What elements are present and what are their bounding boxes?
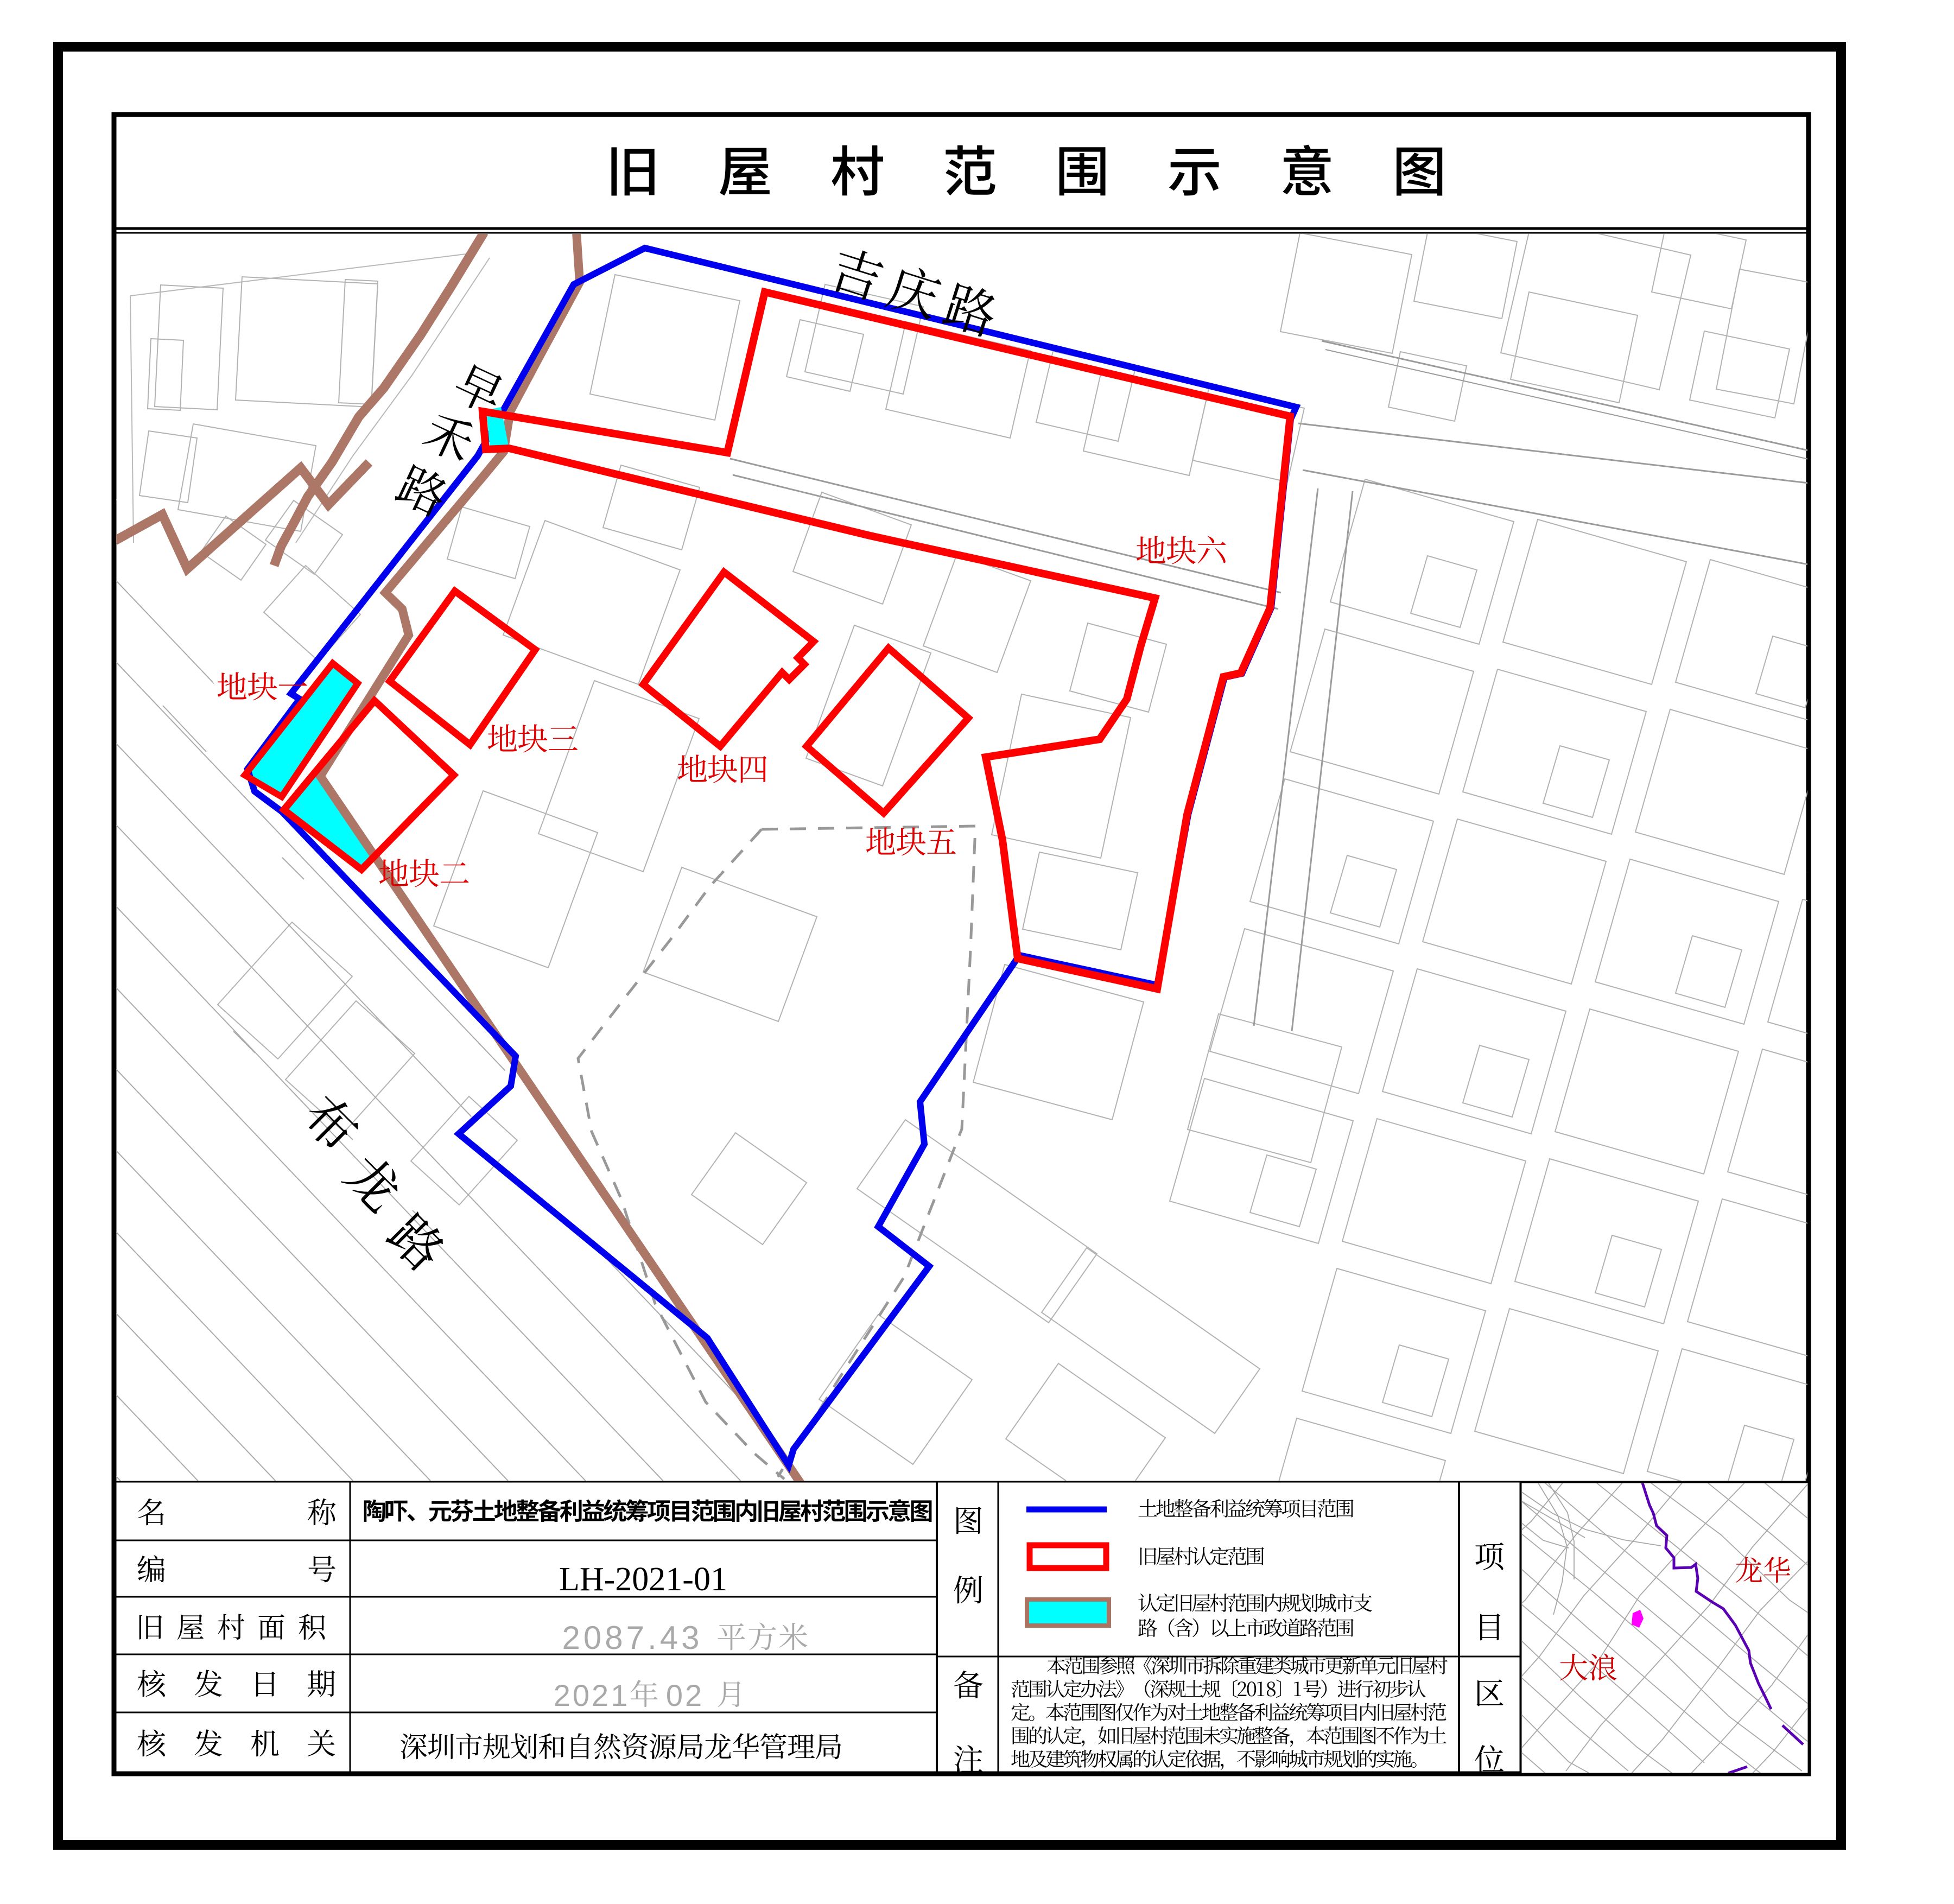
svg-text:LH-2021-01: LH-2021-01 bbox=[559, 1561, 727, 1598]
svg-text:2087.43: 2087.43 bbox=[562, 1620, 703, 1656]
svg-text:2021: 2021 bbox=[554, 1678, 630, 1712]
svg-text:02: 02 bbox=[666, 1678, 704, 1712]
